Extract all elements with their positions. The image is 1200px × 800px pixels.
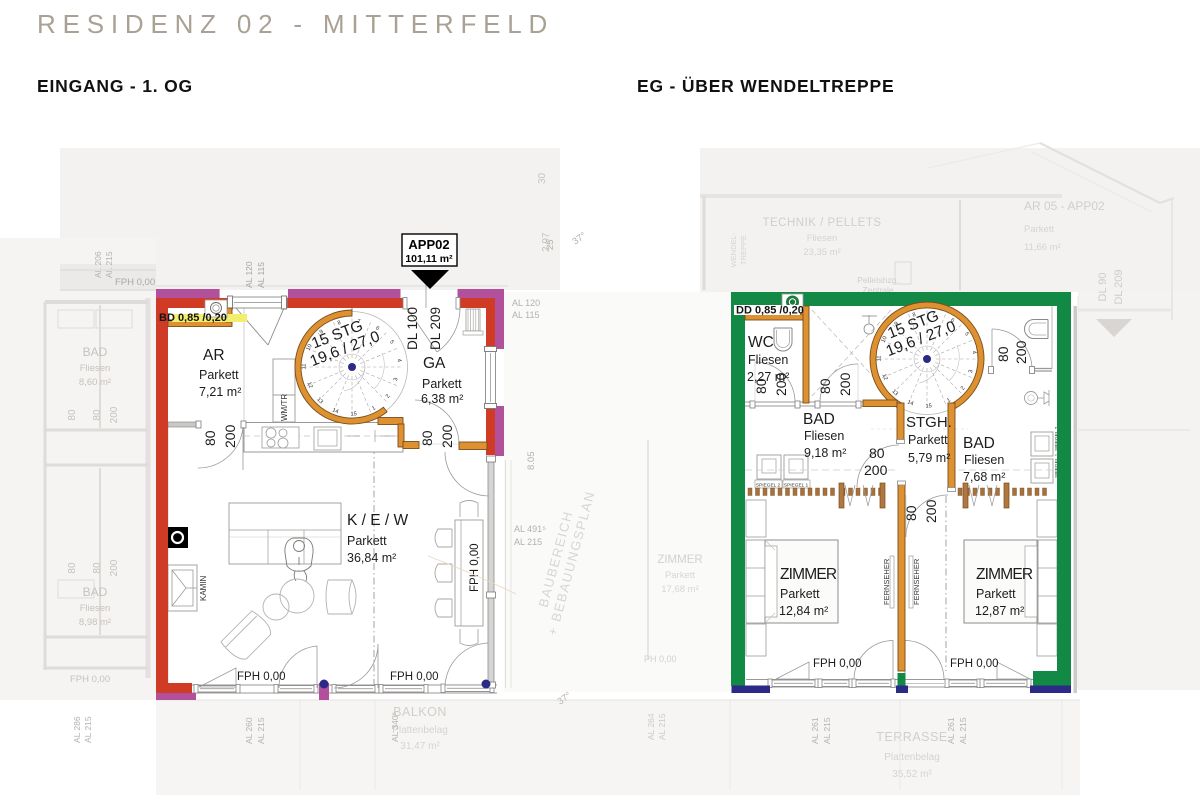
svg-text:12,84 m²: 12,84 m² <box>779 604 828 618</box>
svg-text:AL 260: AL 260 <box>244 717 254 744</box>
svg-text:80: 80 <box>817 378 833 394</box>
svg-text:80: 80 <box>903 505 919 521</box>
svg-text:9,18 m²: 9,18 m² <box>804 446 846 460</box>
svg-text:8.05: 8.05 <box>526 452 537 471</box>
svg-text:AL 115: AL 115 <box>256 262 266 288</box>
svg-text:200: 200 <box>837 372 853 396</box>
svg-text:SPIEGEL 2: SPIEGEL 2 <box>756 483 781 489</box>
svg-text:BAD: BAD <box>83 585 108 599</box>
svg-text:80: 80 <box>67 562 78 574</box>
svg-text:30: 30 <box>537 172 548 184</box>
svg-text:GA: GA <box>423 355 446 372</box>
svg-text:12,87 m²: 12,87 m² <box>975 604 1024 618</box>
svg-text:80: 80 <box>869 445 885 461</box>
svg-text:TECHNIK / PELLETS: TECHNIK / PELLETS <box>762 217 881 229</box>
svg-text:Parkett: Parkett <box>780 587 820 601</box>
svg-text:200: 200 <box>864 462 888 478</box>
svg-text:36,84 m²: 36,84 m² <box>347 551 396 565</box>
svg-text:Parkett: Parkett <box>665 570 695 581</box>
svg-text:Fliesen: Fliesen <box>80 603 111 614</box>
svg-text:Pelletshzg.: Pelletshzg. <box>857 275 899 285</box>
svg-text:Plattenbelag: Plattenbelag <box>884 752 940 763</box>
svg-text:WM/TR: WM/TR <box>280 394 289 421</box>
svg-text:7,68 m²: 7,68 m² <box>963 470 1005 484</box>
svg-text:K / E / W: K / E / W <box>347 512 409 529</box>
svg-text:11: 11 <box>876 355 882 361</box>
svg-text:5,79 m²: 5,79 m² <box>908 451 950 465</box>
svg-text:Fliesen: Fliesen <box>807 233 838 244</box>
svg-text:BAD: BAD <box>803 411 835 428</box>
svg-text:AR 05 - APP02: AR 05 - APP02 <box>1024 199 1105 213</box>
svg-text:200: 200 <box>1013 340 1029 364</box>
svg-text:80: 80 <box>419 430 435 446</box>
svg-text:Parkett: Parkett <box>976 587 1016 601</box>
svg-text:2,97: 2,97 <box>541 232 552 252</box>
svg-text:AL 215: AL 215 <box>958 717 968 744</box>
svg-text:AR: AR <box>203 347 225 364</box>
svg-text:8,60 m²: 8,60 m² <box>79 377 111 388</box>
svg-text:200: 200 <box>773 372 789 396</box>
svg-text:Parkett: Parkett <box>347 534 387 548</box>
svg-text:AL 286: AL 286 <box>72 716 82 743</box>
svg-text:Parkett: Parkett <box>908 433 948 447</box>
svg-text:Fliesen: Fliesen <box>748 353 788 367</box>
svg-text:AL 120: AL 120 <box>244 261 254 288</box>
svg-text:DL 209: DL 209 <box>428 307 443 350</box>
svg-text:15: 15 <box>351 411 357 417</box>
svg-text:TERRASSE: TERRASSE <box>876 730 947 744</box>
svg-text:BALKON: BALKON <box>393 705 447 719</box>
svg-text:80: 80 <box>92 562 103 574</box>
svg-text:AL 261: AL 261 <box>946 717 956 744</box>
svg-text:Parkett: Parkett <box>199 368 239 382</box>
svg-text:80: 80 <box>202 430 218 446</box>
svg-text:200: 200 <box>109 406 120 423</box>
svg-text:11,66 m²: 11,66 m² <box>1024 242 1061 253</box>
svg-text:EG - ÜBER WENDELTREPPE: EG - ÜBER WENDELTREPPE <box>637 76 894 96</box>
svg-text:31,47 m²: 31,47 m² <box>400 741 440 752</box>
svg-text:WC: WC <box>748 334 774 351</box>
svg-text:AL 264: AL 264 <box>646 713 656 740</box>
svg-text:TREPPE: TREPPE <box>739 235 748 265</box>
svg-text:Plattenbelag: Plattenbelag <box>392 725 448 736</box>
svg-text:AL 340⁵: AL 340⁵ <box>390 712 400 742</box>
svg-text:FERNSEHER: FERNSEHER <box>912 558 921 605</box>
svg-text:FPH 0,00: FPH 0,00 <box>813 658 862 670</box>
svg-text:ZIMMER: ZIMMER <box>657 554 702 566</box>
svg-text:FERNSEHER: FERNSEHER <box>882 558 891 605</box>
svg-text:FPH 0,00: FPH 0,00 <box>469 543 481 592</box>
svg-text:101,11 m²: 101,11 m² <box>405 253 453 265</box>
svg-text:ZIMMER: ZIMMER <box>780 566 837 583</box>
svg-text:APP02: APP02 <box>408 237 449 252</box>
svg-text:AL 261: AL 261 <box>810 717 820 744</box>
svg-text:DL 90: DL 90 <box>1097 273 1109 302</box>
svg-text:AL 215: AL 215 <box>822 717 832 744</box>
svg-text:35,52 m²: 35,52 m² <box>892 769 932 780</box>
svg-text:AL 215: AL 215 <box>256 717 266 744</box>
svg-text:ZIMMER: ZIMMER <box>976 566 1033 583</box>
svg-text:200: 200 <box>439 424 455 448</box>
svg-text:23,35 m²: 23,35 m² <box>803 247 841 258</box>
svg-text:AL 215: AL 215 <box>83 716 93 743</box>
svg-text:WENDEL-: WENDEL- <box>729 232 738 267</box>
svg-text:11: 11 <box>301 363 307 369</box>
svg-text:RESIDENZ 02 - MITTERFELD: RESIDENZ 02 - MITTERFELD <box>37 9 554 39</box>
svg-text:STGH.: STGH. <box>906 414 952 431</box>
svg-text:Fliesen: Fliesen <box>80 363 111 374</box>
svg-text:AL 206: AL 206 <box>93 251 103 278</box>
svg-text:EINGANG - 1. OG: EINGANG - 1. OG <box>37 76 193 96</box>
svg-text:DD 0,85 /0,20: DD 0,85 /0,20 <box>736 305 804 317</box>
svg-text:AL 115: AL 115 <box>512 310 540 320</box>
svg-text:AL 120: AL 120 <box>512 298 540 308</box>
svg-text:DL 209: DL 209 <box>1113 269 1125 304</box>
svg-text:AL 215: AL 215 <box>104 251 114 278</box>
svg-text:KAMIN: KAMIN <box>199 575 208 601</box>
svg-text:FPH 0,00: FPH 0,00 <box>390 671 439 683</box>
svg-text:SPIEGEL 1: SPIEGEL 1 <box>784 483 809 489</box>
svg-text:80: 80 <box>995 346 1011 362</box>
svg-text:80: 80 <box>753 378 769 394</box>
svg-text:Parkett: Parkett <box>1024 224 1054 235</box>
svg-text:AL 215: AL 215 <box>514 537 542 547</box>
svg-text:200: 200 <box>222 424 238 448</box>
svg-text:FPH 0,00: FPH 0,00 <box>70 674 110 685</box>
svg-text:FPH 0,00: FPH 0,00 <box>950 658 999 670</box>
svg-text:7,21 m²: 7,21 m² <box>199 385 241 399</box>
svg-text:Parkett: Parkett <box>422 377 462 391</box>
svg-text:Fliesen: Fliesen <box>964 453 1004 467</box>
svg-text:BAD: BAD <box>963 435 995 452</box>
svg-text:200: 200 <box>923 499 939 523</box>
svg-text:DL 100: DL 100 <box>405 307 420 350</box>
svg-text:6,38 m²: 6,38 m² <box>421 392 463 406</box>
svg-text:AL 491⁵: AL 491⁵ <box>514 524 546 534</box>
svg-text:BD 0,85 /0,20: BD 0,85 /0,20 <box>159 312 227 324</box>
svg-text:80: 80 <box>67 409 78 421</box>
svg-text:15: 15 <box>926 403 932 409</box>
svg-text:PH 0,00: PH 0,00 <box>644 654 677 664</box>
svg-text:BAD: BAD <box>83 345 108 359</box>
svg-text:200: 200 <box>109 559 120 576</box>
svg-text:Fliesen: Fliesen <box>804 429 844 443</box>
svg-text:AL 215: AL 215 <box>657 713 667 740</box>
svg-text:FPH 0,00: FPH 0,00 <box>237 671 286 683</box>
svg-text:8,98 m²: 8,98 m² <box>79 617 111 628</box>
svg-text:80: 80 <box>92 409 103 421</box>
svg-text:17,68 m²: 17,68 m² <box>661 584 699 595</box>
svg-text:FPH 0,00: FPH 0,00 <box>115 277 155 288</box>
